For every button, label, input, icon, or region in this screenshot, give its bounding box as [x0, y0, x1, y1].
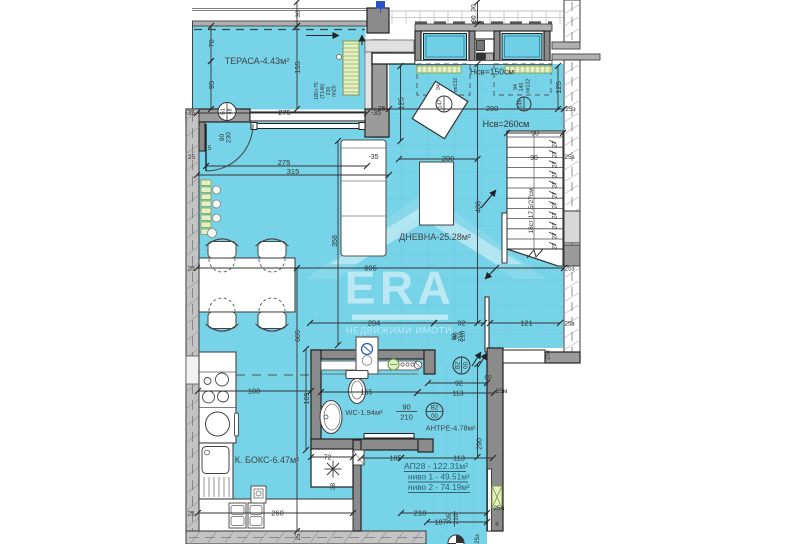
svg-text:200: 200 — [442, 154, 455, 163]
svg-text:95: 95 — [207, 81, 216, 89]
svg-text:48: 48 — [228, 108, 234, 114]
svg-text:25з: 25з — [564, 321, 574, 328]
svg-text:275: 275 — [278, 158, 291, 167]
svg-text:пп132: пп132 — [453, 78, 459, 92]
svg-text:АНТРЕ-4.78м²: АНТРЕ-4.78м² — [426, 424, 476, 433]
svg-text:30: 30 — [471, 4, 478, 12]
svg-text:ниво 2 - 74.19м²: ниво 2 - 74.19м² — [408, 482, 470, 492]
svg-text:665: 665 — [295, 330, 302, 342]
svg-text:25з: 25з — [546, 350, 552, 360]
svg-text:6: 6 — [495, 521, 499, 528]
svg-text:70: 70 — [207, 39, 216, 47]
svg-text:90: 90 — [530, 155, 538, 162]
svg-text:94: 94 — [436, 84, 442, 90]
svg-text:121: 121 — [520, 319, 533, 328]
svg-text:-25м: -25м — [494, 388, 508, 395]
svg-text:140: 140 — [519, 83, 525, 92]
svg-text:18ст 17.5/27см: 18ст 17.5/27см — [528, 188, 535, 234]
svg-text:ТЕРАСА-4.43м²: ТЕРАСА-4.43м² — [225, 56, 290, 66]
svg-text:188: 188 — [248, 387, 261, 396]
svg-text:ДНЕВНА-25.28м²: ДНЕВНА-25.28м² — [399, 232, 471, 242]
svg-text:-35: -35 — [368, 154, 378, 161]
svg-text:Нсв=260см: Нсв=260см — [483, 119, 530, 129]
svg-text:125: 125 — [397, 97, 406, 110]
svg-text:290: 290 — [477, 438, 484, 450]
svg-text:218: 218 — [414, 509, 427, 518]
svg-text:92: 92 — [455, 381, 463, 388]
svg-text:230: 230 — [226, 132, 233, 143]
svg-text:пп132: пп132 — [526, 79, 532, 93]
svg-text:90: 90 — [531, 131, 539, 138]
svg-text:210: 210 — [459, 331, 465, 342]
svg-text:-35: -35 — [185, 110, 195, 117]
svg-text:25: 25 — [187, 511, 195, 518]
svg-text:25м: 25м — [494, 506, 505, 512]
svg-text:147: 147 — [438, 99, 444, 108]
svg-text:25: 25 — [296, 533, 302, 540]
svg-text:315: 315 — [287, 167, 300, 176]
svg-text:146: 146 — [518, 99, 524, 108]
svg-text:165: 165 — [361, 390, 373, 397]
svg-text:25: 25 — [187, 266, 195, 273]
svg-text:00: 00 — [431, 414, 438, 420]
svg-text:92: 92 — [457, 319, 465, 328]
svg-text:ERA: ERA — [345, 262, 456, 314]
svg-text:В2: В2 — [431, 406, 439, 412]
svg-text:25з: 25з — [475, 534, 481, 544]
svg-text:5: 5 — [208, 145, 212, 152]
svg-text:125: 125 — [554, 81, 563, 94]
svg-text:Б1: Б1 — [221, 108, 227, 115]
svg-text:105: 105 — [446, 513, 453, 524]
svg-text:30: 30 — [471, 15, 478, 23]
svg-text:210: 210 — [400, 413, 413, 422]
svg-text:90: 90 — [452, 333, 458, 340]
svg-text:72: 72 — [324, 455, 332, 462]
svg-text:107: 107 — [435, 520, 447, 527]
svg-text:90: 90 — [402, 403, 410, 412]
svg-text:WC-1.94м²: WC-1.94м² — [345, 408, 383, 417]
svg-text:К. БОКС-6.47м²: К. БОКС-6.47м² — [235, 455, 299, 465]
svg-text:488: 488 — [476, 201, 483, 213]
svg-text:169: 169 — [304, 393, 311, 405]
svg-text:25: 25 — [188, 154, 196, 161]
svg-text:60: 60 — [484, 375, 492, 382]
svg-text:204: 204 — [368, 319, 381, 328]
svg-text:38: 38 — [330, 483, 337, 491]
svg-text:В2: В2 — [456, 361, 462, 369]
svg-text:00: 00 — [464, 362, 470, 369]
svg-text:260: 260 — [271, 509, 284, 518]
svg-text:Нсв=150см: Нсв=150см — [470, 67, 514, 77]
svg-text:ниво 1 - 49.51м²: ниво 1 - 49.51м² — [408, 472, 470, 482]
svg-text:НЕДВИЖИМИ ИМОТИ: НЕДВИЖИМИ ИМОТИ — [346, 326, 452, 336]
svg-text:113: 113 — [452, 391, 463, 398]
svg-text:-35: -35 — [375, 106, 385, 113]
svg-text:155: 155 — [293, 61, 302, 74]
svg-text:290: 290 — [486, 104, 499, 113]
svg-text:25з: 25з — [564, 266, 574, 273]
svg-text:25з: 25з — [564, 154, 574, 161]
svg-text:275: 275 — [278, 108, 291, 117]
svg-text:30: 30 — [295, 10, 302, 18]
svg-text:210: 210 — [453, 513, 460, 524]
svg-text:АП28 - 122.31м²: АП28 - 122.31м² — [404, 461, 468, 471]
svg-text:358: 358 — [332, 235, 339, 247]
svg-text:пп20: пп20 — [332, 85, 338, 97]
svg-text:25з: 25з — [565, 106, 575, 113]
svg-text:605: 605 — [364, 264, 377, 273]
